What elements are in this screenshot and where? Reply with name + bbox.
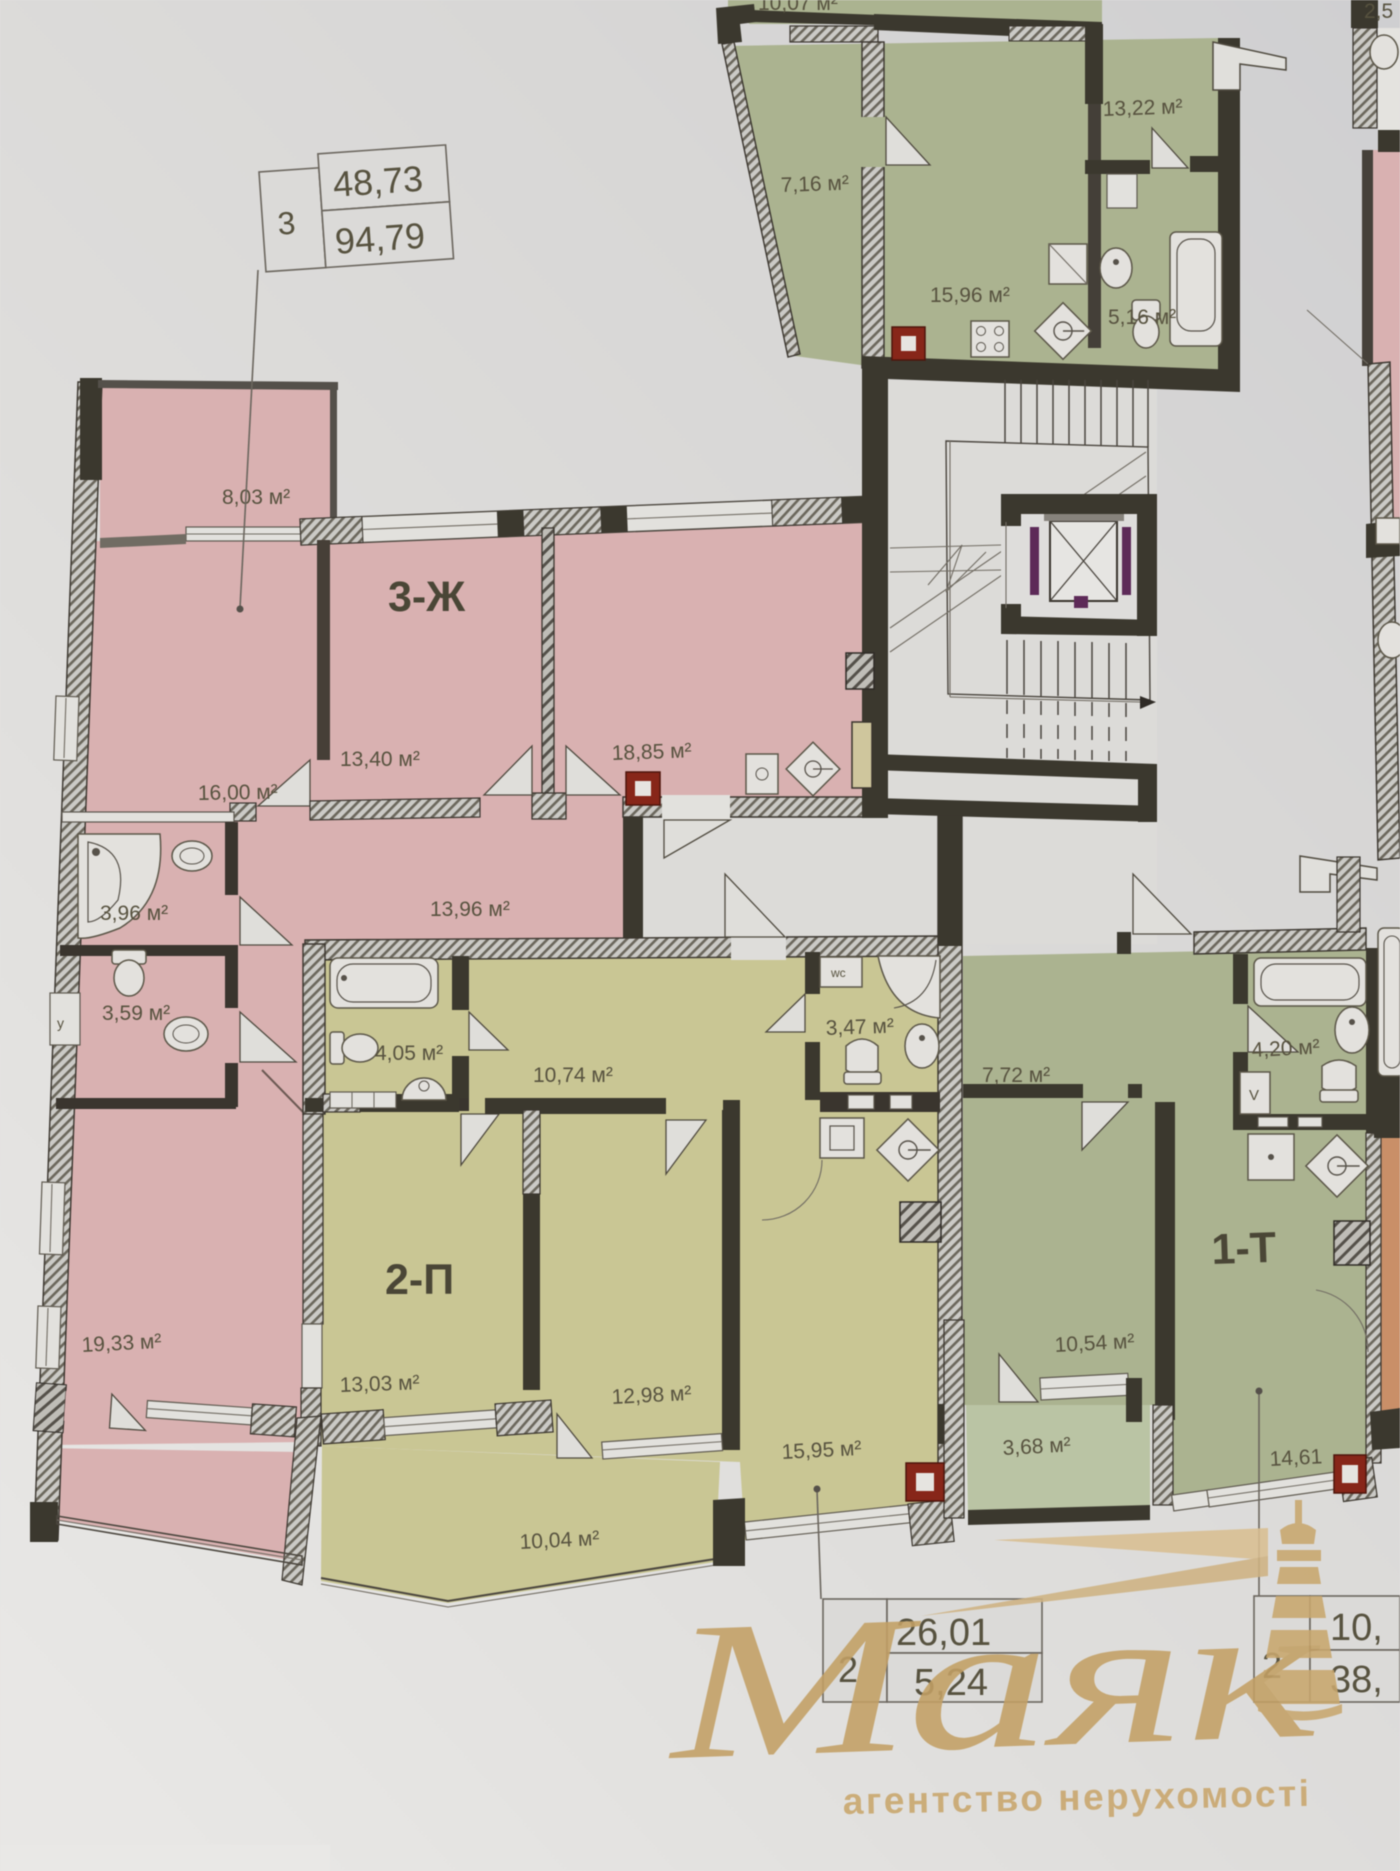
svg-text:у: у xyxy=(57,1015,64,1031)
svg-text:7,72 м²: 7,72 м² xyxy=(982,1064,1050,1087)
svg-text:13,22 м²: 13,22 м² xyxy=(1102,95,1183,121)
svg-text:3,59 м²: 3,59 м² xyxy=(102,1002,170,1025)
svg-text:3,47 м²: 3,47 м² xyxy=(825,1015,894,1040)
svg-text:19,33 м²: 19,33 м² xyxy=(81,1330,162,1357)
svg-text:13,40 м²: 13,40 м² xyxy=(340,748,420,771)
svg-text:12,98 м²: 12,98 м² xyxy=(611,1382,692,1409)
svg-text:10,: 10, xyxy=(1330,1607,1383,1649)
svg-text:7,16 м²: 7,16 м² xyxy=(780,172,849,197)
svg-text:4,20 м²: 4,20 м² xyxy=(1251,1035,1320,1062)
svg-text:1-Т: 1-Т xyxy=(1211,1224,1277,1274)
svg-text:48,73: 48,73 xyxy=(332,158,425,205)
svg-text:wc: wc xyxy=(830,966,846,980)
svg-text:15,96 м²: 15,96 м² xyxy=(930,284,1010,307)
svg-text:16,00 м²: 16,00 м² xyxy=(198,781,278,805)
svg-text:3: 3 xyxy=(276,205,296,242)
svg-text:94,79: 94,79 xyxy=(334,215,427,262)
svg-text:3,96 м²: 3,96 м² xyxy=(100,902,168,925)
svg-text:15,95 м²: 15,95 м² xyxy=(781,1437,862,1464)
svg-text:5,16 м²: 5,16 м² xyxy=(1108,306,1176,329)
svg-text:агентство нерухомості: агентство нерухомості xyxy=(842,1773,1311,1822)
svg-text:13,96 м²: 13,96 м² xyxy=(430,898,510,921)
svg-text:3,68 м²: 3,68 м² xyxy=(1002,1433,1071,1460)
svg-text:V: V xyxy=(1249,1087,1259,1104)
svg-text:10,74 м²: 10,74 м² xyxy=(533,1064,613,1087)
svg-text:18,85 м²: 18,85 м² xyxy=(611,739,692,765)
svg-text:2,5: 2,5 xyxy=(1364,0,1393,23)
svg-text:14,61: 14,61 xyxy=(1269,1445,1323,1471)
svg-text:8,03 м²: 8,03 м² xyxy=(222,486,290,509)
svg-text:4,05 м²: 4,05 м² xyxy=(375,1042,443,1065)
svg-text:10,04 м²: 10,04 м² xyxy=(519,1527,600,1554)
svg-text:2-П: 2-П xyxy=(385,1256,454,1304)
svg-text:13,03 м²: 13,03 м² xyxy=(339,1371,420,1397)
svg-text:3-Ж: 3-Ж xyxy=(388,573,466,621)
svg-text:Маяк: Маяк xyxy=(662,1561,1326,1801)
svg-text:10,07 м²: 10,07 м² xyxy=(758,0,838,15)
svg-text:10,54 м²: 10,54 м² xyxy=(1054,1330,1135,1357)
